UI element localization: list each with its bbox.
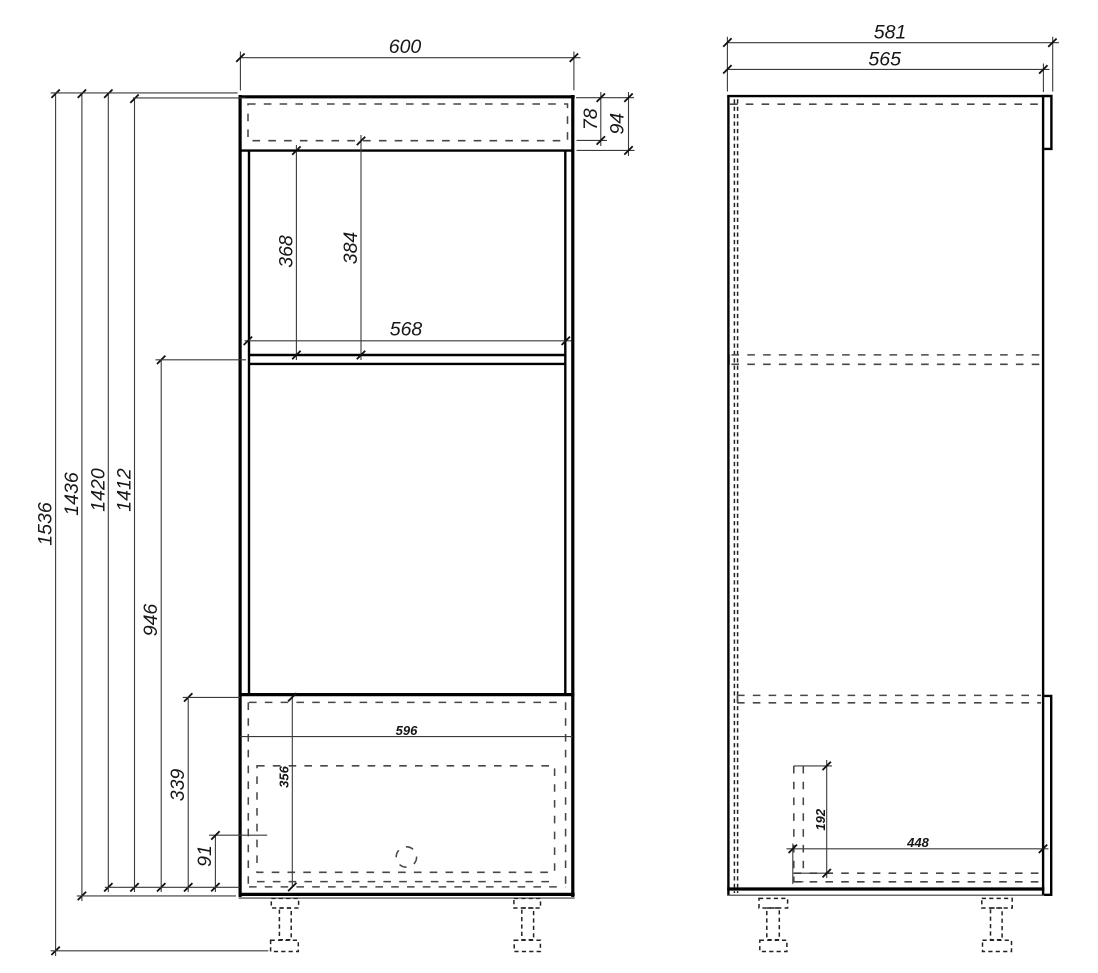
svg-text:600: 600 <box>389 36 422 58</box>
svg-text:94: 94 <box>606 113 628 135</box>
svg-text:568: 568 <box>390 319 423 341</box>
svg-text:339: 339 <box>167 769 189 802</box>
svg-text:1536: 1536 <box>35 502 57 546</box>
svg-text:1412: 1412 <box>114 468 136 512</box>
svg-text:596: 596 <box>396 723 418 738</box>
svg-text:78: 78 <box>580 108 602 130</box>
svg-text:368: 368 <box>276 235 298 268</box>
svg-text:448: 448 <box>906 835 929 850</box>
svg-text:581: 581 <box>874 22 907 44</box>
svg-text:565: 565 <box>868 48 901 70</box>
svg-text:91: 91 <box>194 845 216 867</box>
svg-text:1436: 1436 <box>61 472 83 516</box>
svg-text:192: 192 <box>813 808 828 830</box>
svg-text:1420: 1420 <box>87 468 109 512</box>
svg-text:946: 946 <box>140 604 162 637</box>
svg-text:384: 384 <box>340 232 362 265</box>
svg-text:356: 356 <box>277 765 292 787</box>
